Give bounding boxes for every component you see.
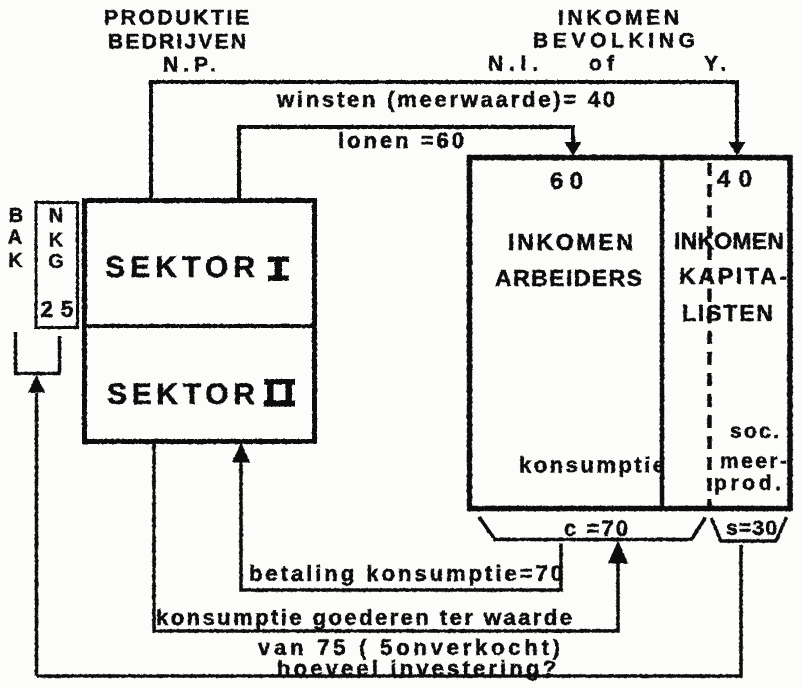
svg-text:PRODUKTIE: PRODUKTIE — [104, 7, 249, 30]
svg-text:betaling konsumptie=70: betaling konsumptie=70 — [249, 561, 563, 586]
svg-text:KAPITA-: KAPITA- — [679, 263, 787, 289]
svg-text:BEDRIJVEN: BEDRIJVEN — [108, 31, 246, 54]
svg-text:N: N — [49, 205, 63, 227]
svg-text:BEVOLKING: BEVOLKING — [533, 30, 695, 53]
svg-text:c =70: c =70 — [564, 516, 628, 541]
svg-text:s=30: s=30 — [726, 517, 777, 540]
svg-text:INKOMEN: INKOMEN — [674, 228, 784, 254]
svg-text:hoeveel investering?: hoeveel investering? — [277, 656, 556, 681]
svg-text:winsten (meerwaarde)= 40: winsten (meerwaarde)= 40 — [276, 87, 615, 112]
svg-text:lonen =60: lonen =60 — [338, 128, 464, 153]
svg-text:Y.: Y. — [704, 53, 726, 76]
svg-text:A: A — [8, 227, 22, 249]
svg-text:K: K — [8, 250, 23, 272]
svg-text:LISTEN: LISTEN — [682, 300, 773, 326]
svg-text:prod.: prod. — [714, 472, 781, 495]
svg-text:konsumptie goederen ter waarde: konsumptie goederen ter waarde — [156, 605, 572, 630]
svg-text:G: G — [48, 251, 64, 273]
svg-text:K: K — [49, 230, 64, 252]
svg-text:ARBEIDERS: ARBEIDERS — [495, 265, 642, 291]
svg-text:B: B — [9, 205, 23, 227]
